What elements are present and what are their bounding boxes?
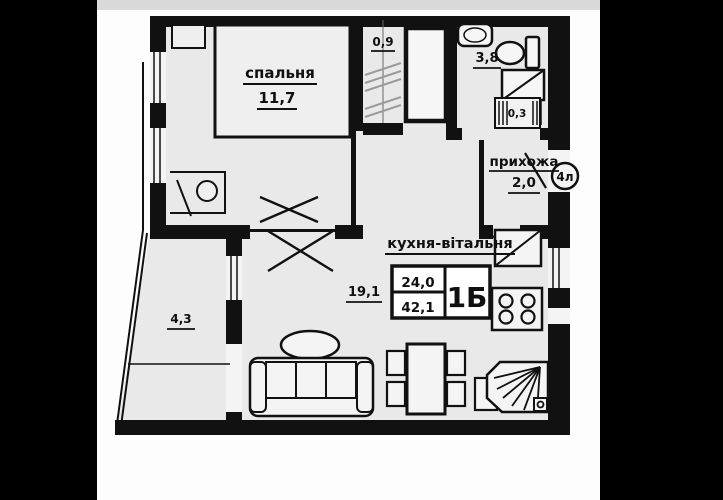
stamp-total-area: 42,1	[401, 300, 434, 316]
floor-plan-photo: 24,0 42,1 1Б 4л спальня 11,7 0,9 3,8 0,3	[97, 0, 600, 500]
wall-bathroom-south-right	[540, 128, 548, 140]
floor-tag-label: 4л	[556, 170, 573, 184]
stamp-living-area: 24,0	[401, 275, 434, 291]
window-bedroom-1	[150, 52, 166, 103]
kitchen-living-label: кухня-вітальня	[387, 236, 512, 252]
loggia-small-area: 0,9	[372, 35, 393, 49]
black-bar-right	[600, 0, 723, 500]
balcony-door-gap	[226, 344, 242, 412]
bedroom-label: спальня	[245, 64, 315, 82]
wall-hallway-west	[479, 140, 484, 225]
wall-loggia-cap	[363, 123, 403, 135]
toilet-tank	[526, 37, 539, 68]
sofa	[250, 358, 373, 416]
stamp-unit-type: 1Б	[447, 281, 488, 314]
dining-chair	[447, 382, 465, 406]
balcony-area: 4,3	[170, 312, 191, 326]
black-bar-left	[0, 0, 97, 500]
wall-bottom	[115, 420, 570, 435]
unit-stamp: 24,0 42,1 1Б	[392, 266, 490, 318]
dining-chair	[387, 382, 405, 406]
window-bedroom-2	[150, 128, 166, 183]
dining-chair	[447, 351, 465, 375]
wall-left-bedroom	[150, 16, 166, 232]
hallway-area: 2,0	[512, 175, 536, 191]
stove	[492, 288, 542, 330]
wall-bathroom-south-left	[446, 128, 462, 140]
dining-table	[407, 344, 445, 414]
dining-chair	[387, 351, 405, 375]
wall-corridor-thin	[351, 131, 356, 225]
floor-plan-drawing: 24,0 42,1 1Б 4л спальня 11,7 0,9 3,8 0,3	[97, 0, 600, 500]
wall-right	[548, 16, 570, 420]
wall-bedroom-south-right	[335, 225, 363, 239]
window-kitchen-2	[548, 308, 570, 324]
window-balcony	[226, 256, 242, 300]
nightstand	[172, 25, 205, 48]
wardrobe	[406, 28, 446, 121]
door-stop	[534, 398, 547, 411]
wall-opening-sill	[250, 229, 335, 232]
kitchen-living-area: 19,1	[348, 285, 380, 300]
bedroom-area: 11,7	[258, 89, 295, 107]
coffee-table	[281, 331, 339, 359]
desk-chair	[197, 181, 217, 201]
screenshot-stage: 24,0 42,1 1Б 4л спальня 11,7 0,9 3,8 0,3	[0, 0, 723, 500]
duct-area: 0,3	[508, 108, 527, 120]
hallway-label: прихожа	[490, 154, 559, 170]
toilet-bowl	[496, 42, 524, 64]
bathroom-area: 3,8	[475, 51, 498, 66]
